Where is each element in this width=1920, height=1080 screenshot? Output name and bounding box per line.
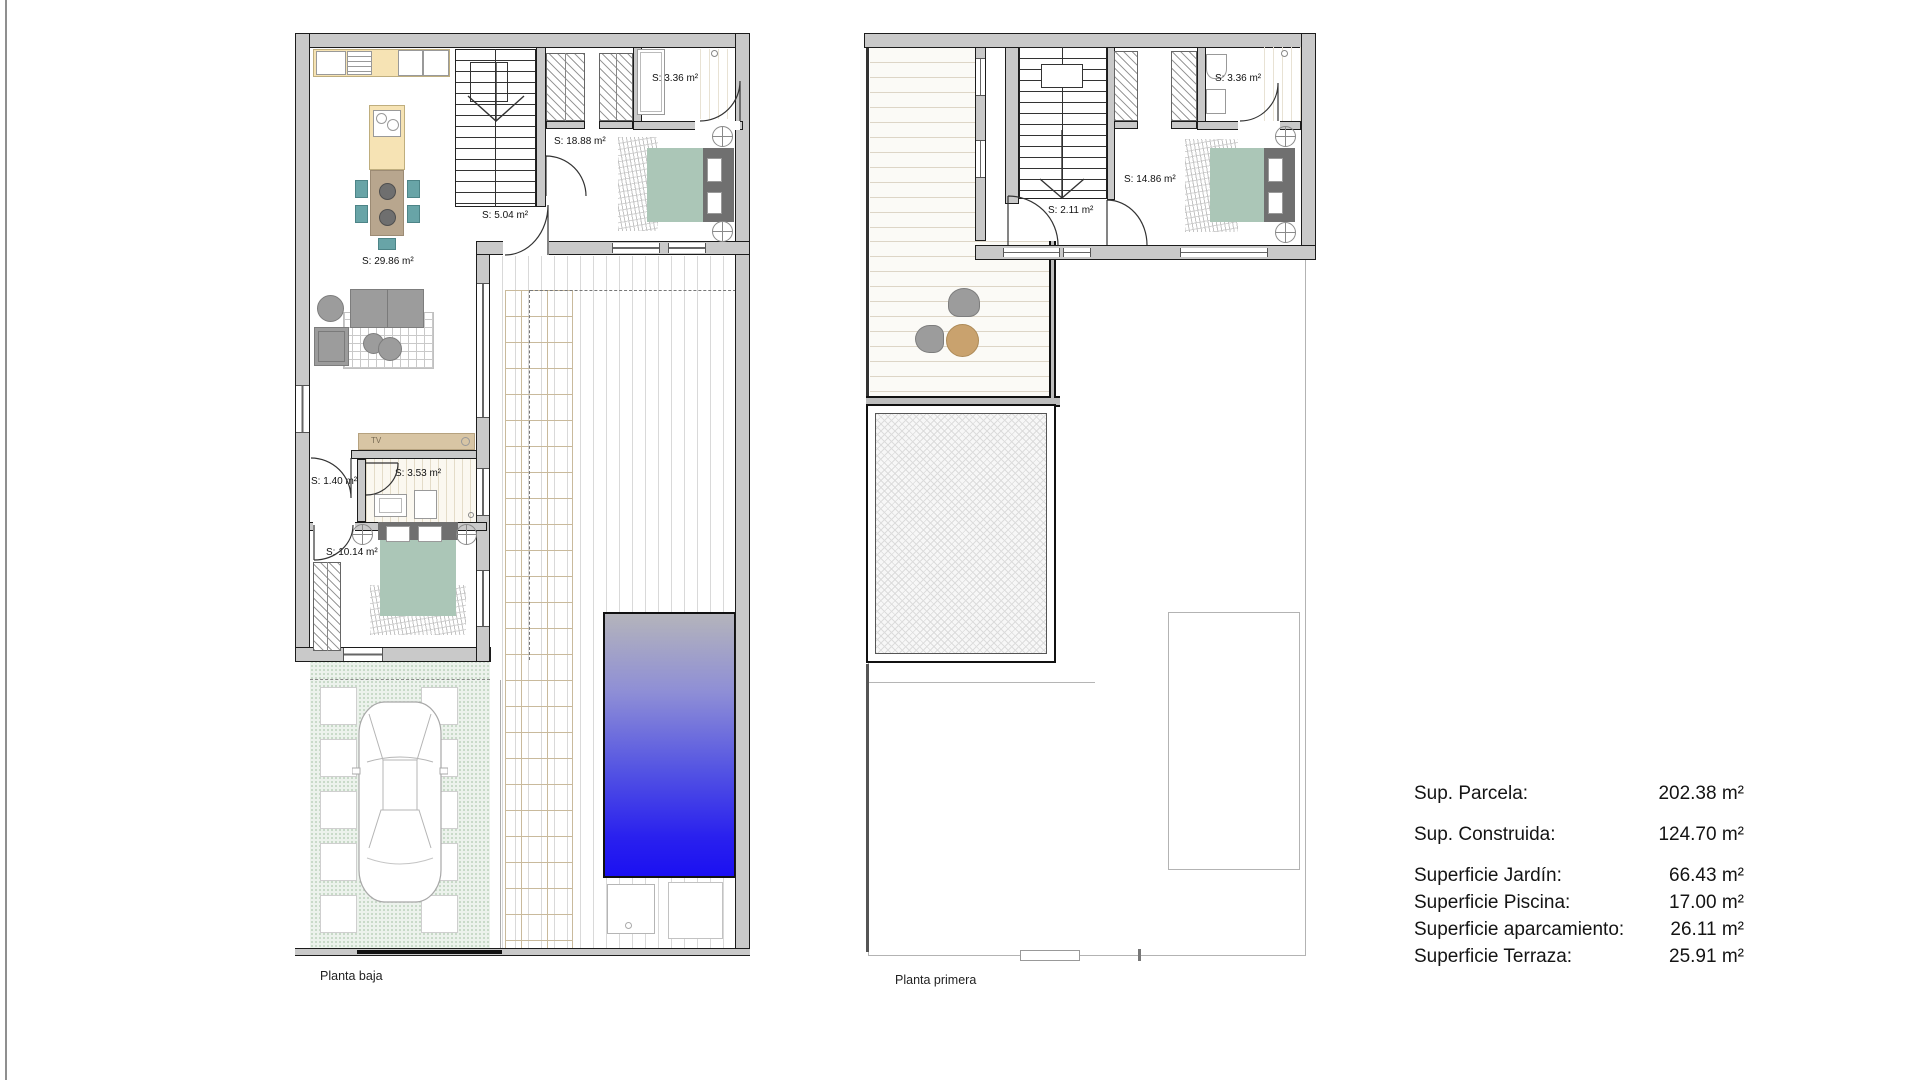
summary-label: Sup. Construida: [1414, 824, 1556, 846]
summary-row: Superficie Piscina: 17.00 m² [1414, 892, 1744, 914]
summary-row: Superficie Terraza: 25.91 m² [1414, 946, 1744, 968]
summary-row: Sup. Construida: 124.70 m² [1414, 824, 1744, 846]
summary-label: Sup. Parcela: [1414, 783, 1528, 805]
summary-row: Sup. Parcela: 202.38 m² [1414, 783, 1744, 805]
summary-label: Superficie Piscina: [1414, 892, 1570, 914]
summary-value: 17.00 m² [1669, 892, 1744, 914]
summary-value: 26.11 m² [1670, 919, 1744, 941]
summary-value: 66.43 m² [1669, 865, 1744, 887]
summary-value: 202.38 m² [1658, 783, 1744, 805]
summary-value: 124.70 m² [1658, 824, 1744, 846]
summary-value: 25.91 m² [1669, 946, 1744, 968]
summary-label: Superficie Terraza: [1414, 946, 1572, 968]
summary-row: Superficie aparcamiento: 26.11 m² [1414, 919, 1744, 941]
drawing-sheet: TV S: 3.36 m² S: 18.88 m² S: 5.04 m² S: … [0, 0, 1920, 1080]
surface-summary: Sup. Parcela: 202.38 m² Sup. Construida:… [0, 0, 1920, 1080]
summary-label: Superficie aparcamiento: [1414, 919, 1624, 941]
summary-row: Superficie Jardín: 66.43 m² [1414, 865, 1744, 887]
summary-label: Superficie Jardín: [1414, 865, 1562, 887]
